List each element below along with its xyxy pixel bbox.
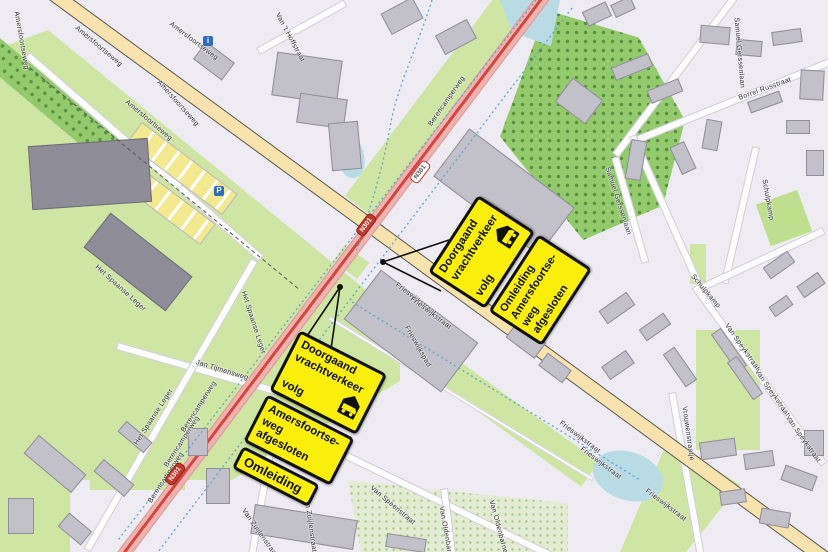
road-shield: N301	[355, 212, 378, 237]
road-shield: N301	[409, 159, 432, 184]
sign-text: volg	[473, 272, 497, 299]
parking-icon: P	[214, 186, 224, 196]
map-canvas: AmersfoortsewegAmersfoortsewegAmersfoort…	[0, 0, 828, 552]
road-shield: N301	[164, 461, 187, 486]
sign-text: volg	[279, 377, 306, 400]
road-shields: N301N301N301	[0, 0, 828, 552]
info-icon: i	[203, 36, 213, 46]
